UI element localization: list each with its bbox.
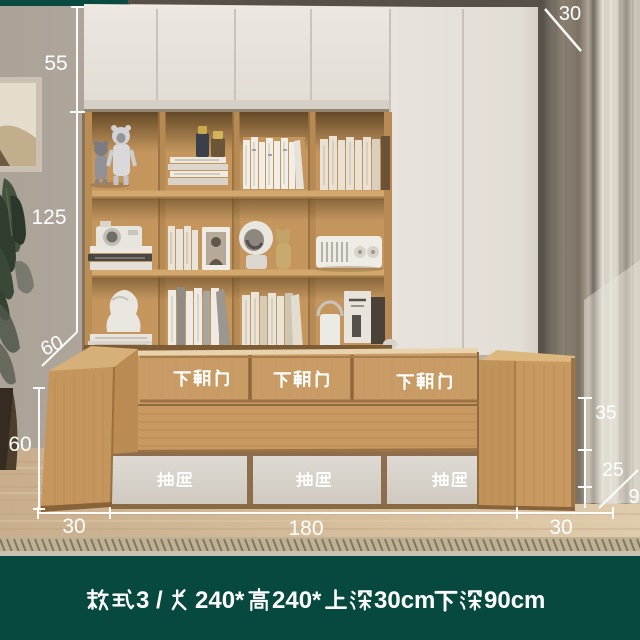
svg-text:30: 30 [559, 3, 581, 25]
svg-text:25: 25 [602, 460, 623, 481]
svg-text:240*: 240* [195, 587, 245, 614]
svg-text:90cm: 90cm [484, 587, 545, 614]
svg-text:180: 180 [288, 517, 323, 540]
svg-text:60: 60 [8, 433, 31, 456]
svg-text:30cm: 30cm [374, 587, 435, 614]
svg-text:30: 30 [549, 516, 572, 539]
svg-text:125: 125 [31, 206, 66, 229]
svg-text:3 /: 3 / [136, 587, 163, 614]
svg-text:55: 55 [44, 52, 67, 75]
svg-text:9: 9 [628, 486, 639, 508]
svg-text:30: 30 [62, 515, 85, 538]
svg-text:240*: 240* [272, 587, 322, 614]
svg-text:35: 35 [595, 403, 616, 424]
